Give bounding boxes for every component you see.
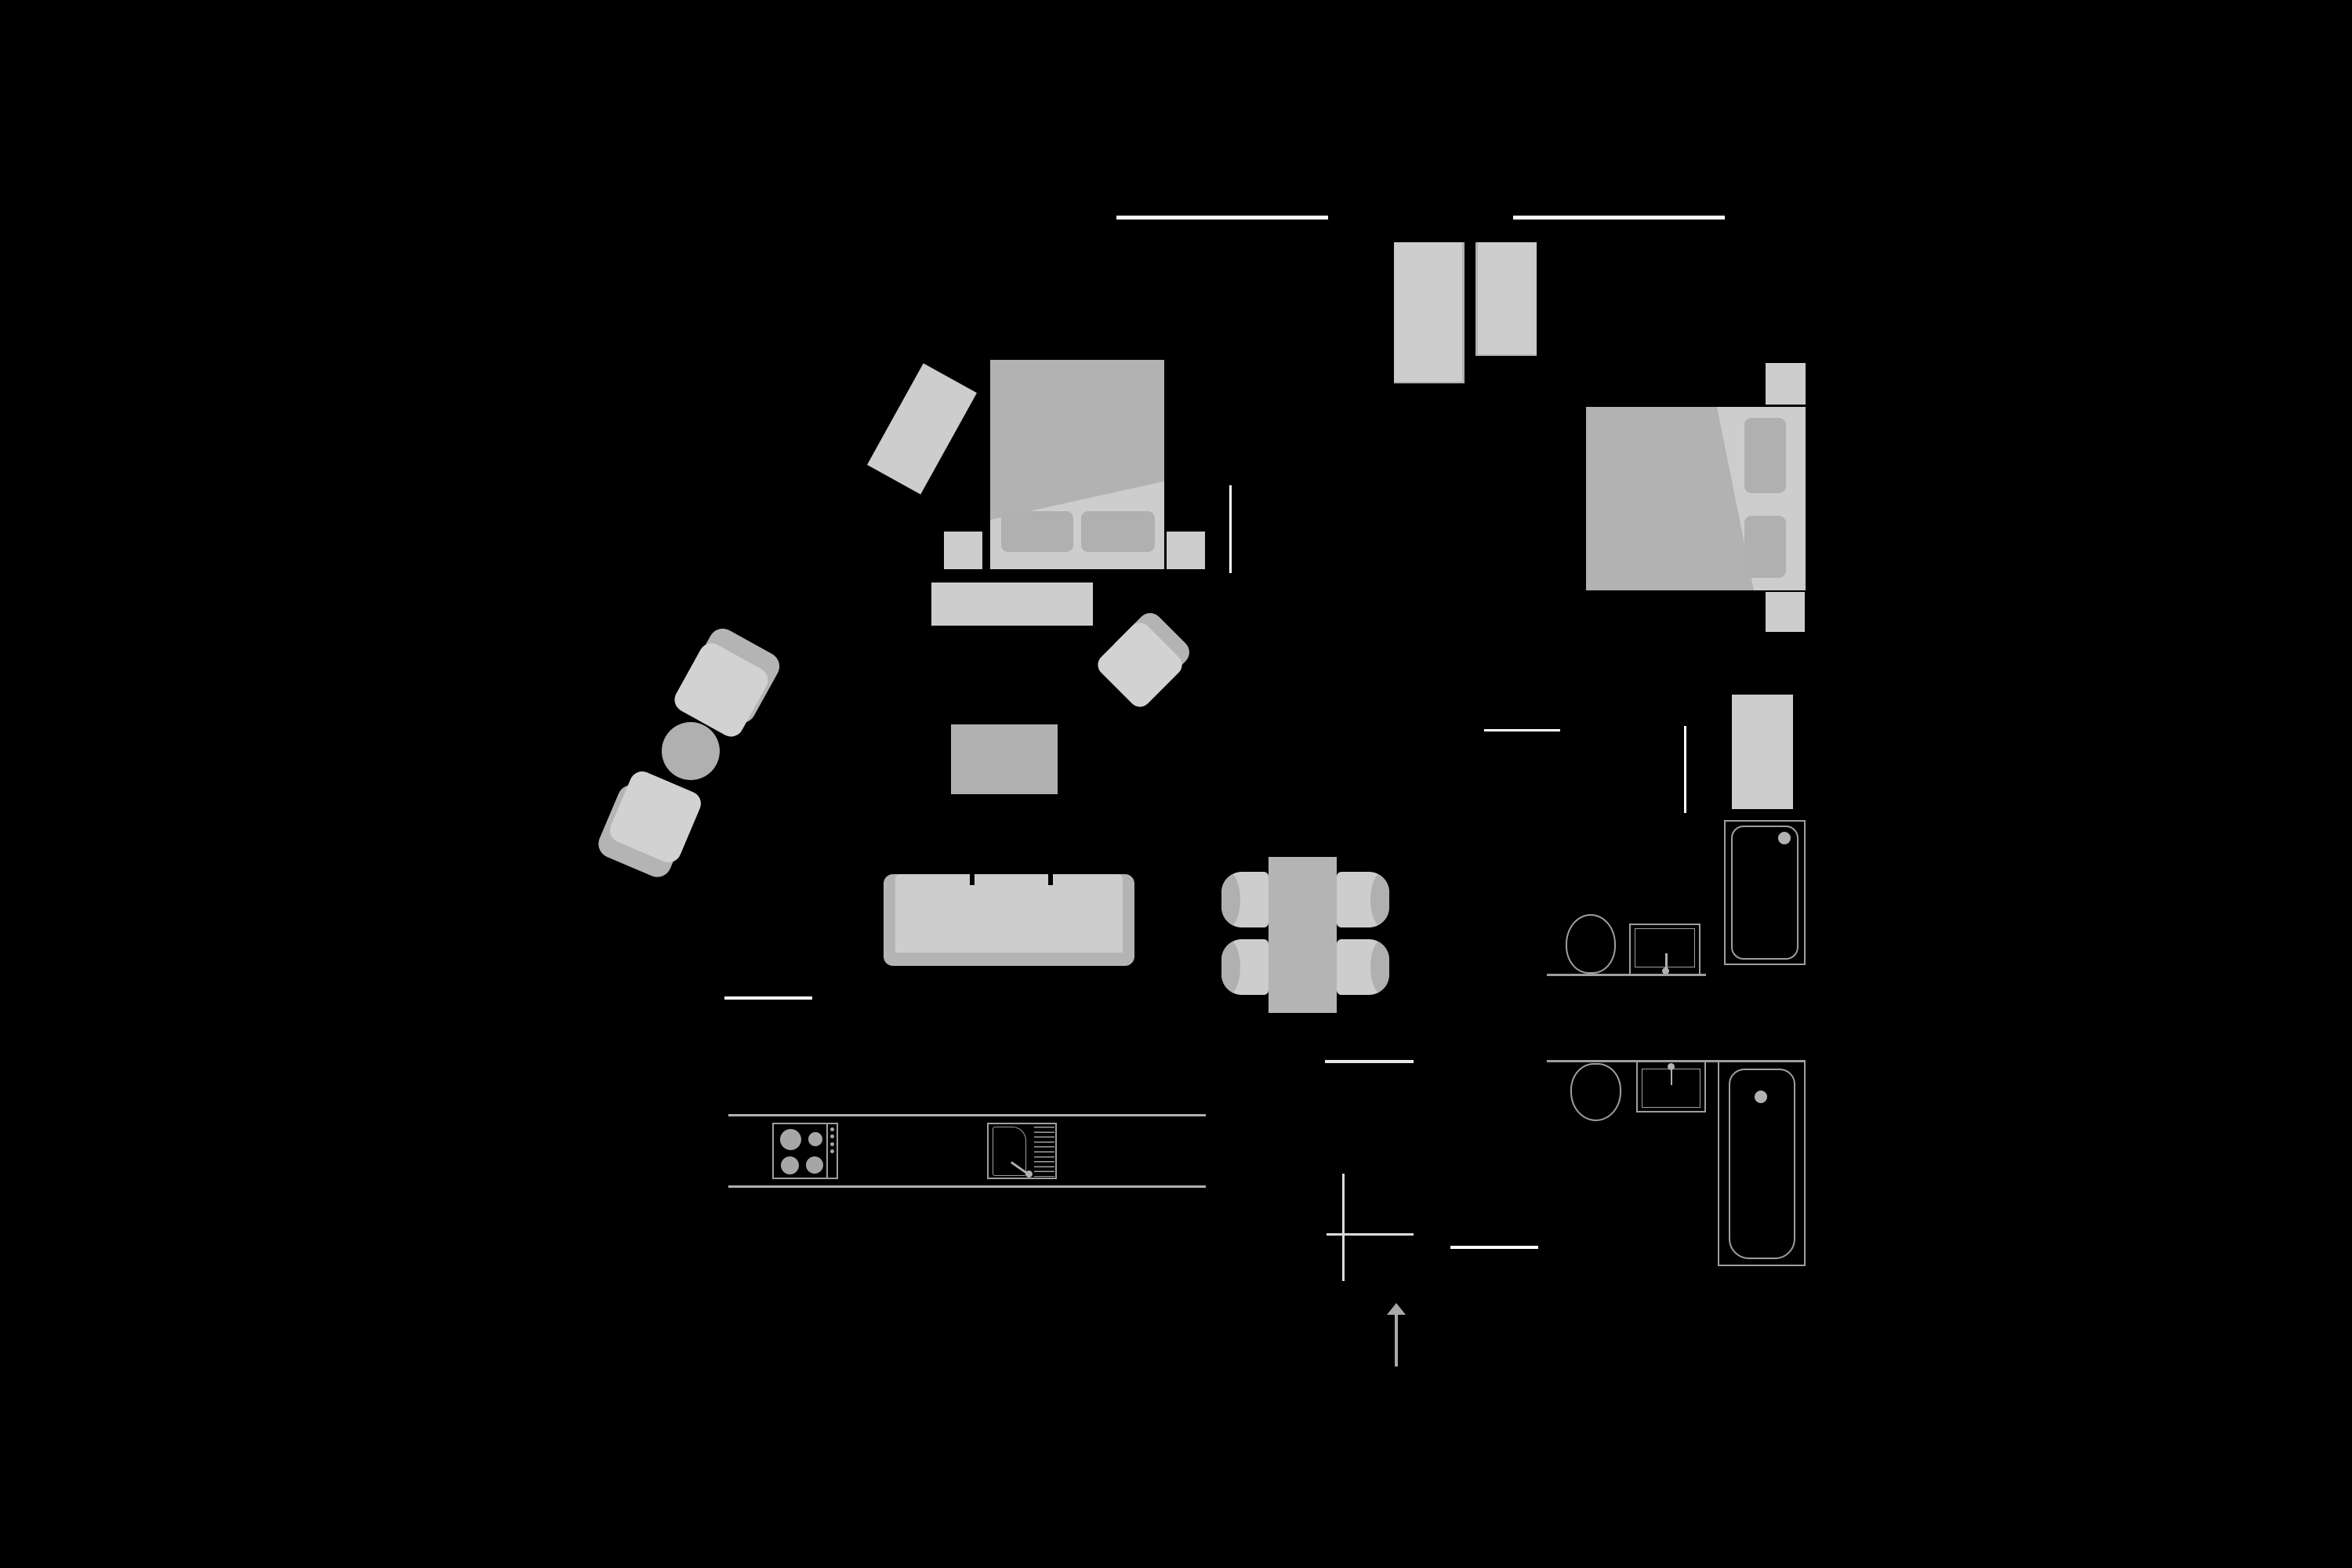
bed2-pillow-bottom [1744,516,1786,578]
wardrobe-short [1475,242,1537,356]
cooktop-control-divider [826,1124,828,1178]
kitchen-wall-opening [724,996,812,1000]
entrance-arrow-line [1395,1313,1398,1367]
kitchen-counter-top-edge [728,1114,1206,1116]
dining-chair-backrest [1370,939,1389,995]
bed1-pillow-left [1001,511,1073,552]
dining-chair-backrest [1221,939,1240,995]
bedroom1-rug [867,363,977,494]
burner-medium-bottom-left [781,1156,799,1174]
bed1-pillow-right [1081,511,1155,552]
origin-cross-horizontal [1327,1233,1414,1236]
sink-drainboard-lines [1034,1127,1054,1177]
dining-chair-backrest [1221,872,1240,927]
cooktop [772,1123,838,1179]
sink-faucet-dot [1025,1171,1033,1178]
bath1-toilet [1566,914,1616,974]
sofa-cushion-divider-1 [970,874,975,885]
bed2-pillow-top [1744,418,1786,493]
window-top-left [1116,216,1328,220]
round-side-table [662,722,720,780]
cooktop-knob-2 [830,1134,834,1138]
sofa-cushion-divider-2 [1048,874,1053,885]
bath2-faucet-line [1671,1069,1673,1085]
bathroom2-wall-opening [1450,1246,1538,1249]
bath1-washbasin [1629,924,1700,975]
dining-chair-bottom-right [1337,939,1389,995]
origin-cross-vertical [1342,1174,1345,1281]
burner-small-top-right [808,1132,822,1146]
bedroom1-dresser [931,583,1093,626]
burner-large-top-left [780,1129,801,1150]
coffee-table [951,724,1058,794]
dining-chair-top-right [1337,872,1389,927]
bathroom1-door-line [1684,726,1686,813]
bed1-nightstand-right [1167,532,1205,569]
bath1-wall-line [1547,974,1706,976]
cooktop-knob-3 [830,1142,834,1146]
bath2-washbasin [1636,1061,1706,1112]
floor-plan-canvas [0,0,2352,1568]
burner-medium-bottom-right [806,1156,823,1174]
bed2-nightstand-top [1766,363,1806,405]
bed1-nightstand-left [944,532,982,569]
cooktop-knob-4 [830,1149,834,1153]
bedroom2-side-opening [1484,729,1560,731]
wardrobe-tall [1394,242,1465,383]
kitchen-sink [987,1123,1057,1179]
dining-chair-top-left [1221,872,1269,927]
bed2-mattress [1586,407,1717,590]
dining-chair-bottom-left [1221,939,1269,995]
dining-wall-opening [1325,1060,1414,1063]
bath2-toilet [1570,1063,1621,1121]
bed1-mattress [990,360,1164,481]
bed2-nightstand-bottom [1766,592,1805,632]
cooktop-knob-1 [830,1127,834,1131]
sofa-seat [895,874,1123,953]
bathtub-faucet-dot [1755,1091,1767,1103]
shower-head-dot [1778,832,1791,844]
window-top-right [1513,216,1725,220]
bedroom1-side-opening [1229,485,1232,573]
dining-chair-backrest [1370,872,1389,927]
dining-table [1269,857,1337,1013]
shower-cabin-inner [1731,826,1798,960]
washing-machine [1732,695,1793,809]
kitchen-counter-bottom-edge [728,1185,1206,1188]
